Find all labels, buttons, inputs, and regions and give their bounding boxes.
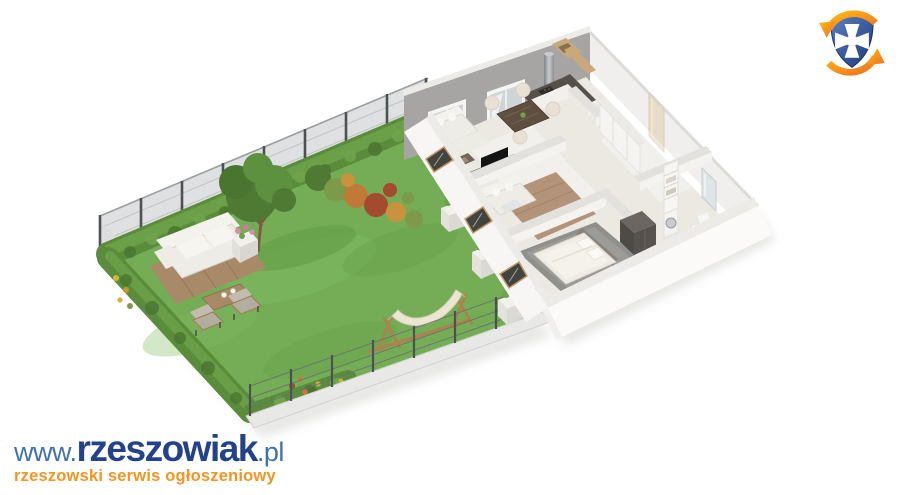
shelf-tower: [664, 160, 678, 214]
range-hood-icon: [544, 54, 554, 86]
real-estate-visual: www.rzeszowiak.pl rzeszowski serwis ogło…: [0, 0, 900, 495]
site-logo: www.rzeszowiak.pl: [14, 430, 284, 467]
site-watermark: www.rzeszowiak.pl rzeszowski serwis ogło…: [14, 430, 284, 485]
logo-site-name: rzeszowiak: [77, 430, 257, 467]
rzeszowiak-shield-emblem-icon: [814, 5, 890, 81]
logo-www-prefix: www.: [14, 439, 77, 466]
logo-tagline: rzeszowski serwis ogłoszeniowy: [14, 468, 284, 485]
logo-tld: .pl: [257, 439, 284, 466]
floor-plan-scene: [0, 0, 900, 495]
